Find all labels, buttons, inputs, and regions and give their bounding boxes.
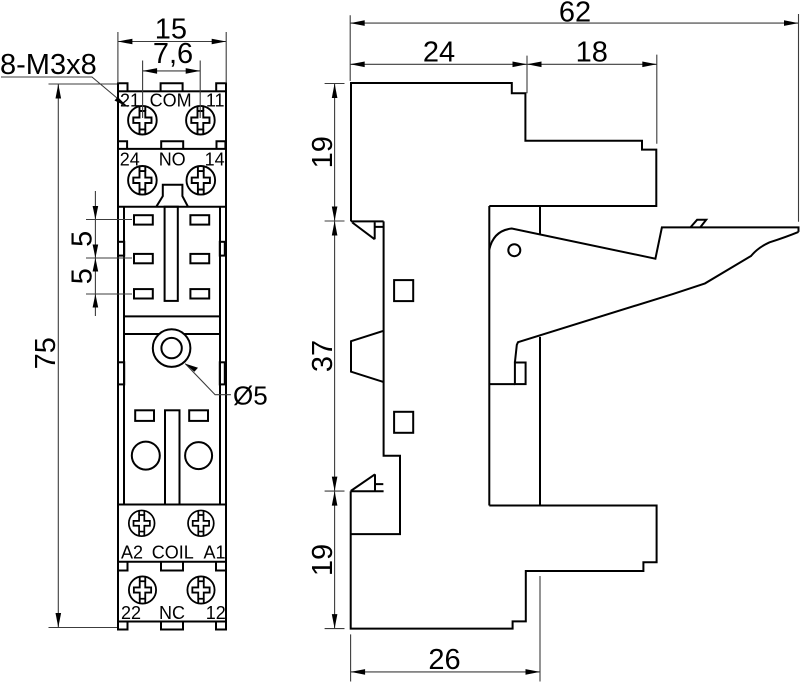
svg-text:NO: NO (159, 149, 186, 169)
svg-text:62: 62 (559, 0, 591, 29)
svg-text:A2: A2 (121, 543, 143, 563)
svg-text:24: 24 (120, 149, 140, 169)
svg-text:21: 21 (120, 90, 140, 110)
svg-text:22: 22 (121, 603, 141, 623)
svg-text:26: 26 (428, 644, 460, 676)
svg-text:Ø5: Ø5 (233, 381, 268, 411)
svg-text:12: 12 (206, 603, 226, 623)
svg-text:75: 75 (30, 337, 62, 369)
svg-text:NC: NC (159, 603, 185, 623)
svg-text:A1: A1 (203, 543, 225, 563)
svg-text:COIL: COIL (152, 543, 194, 563)
svg-text:18: 18 (576, 37, 608, 69)
svg-text:5: 5 (67, 268, 99, 284)
svg-text:37: 37 (307, 340, 339, 372)
svg-text:5: 5 (67, 231, 99, 247)
svg-text:7,6: 7,6 (153, 38, 193, 70)
svg-text:11: 11 (206, 90, 225, 110)
svg-text:COM: COM (150, 90, 192, 110)
svg-text:8-M3x8: 8-M3x8 (0, 49, 97, 81)
svg-text:19: 19 (307, 544, 339, 576)
svg-text:19: 19 (307, 136, 339, 168)
svg-text:24: 24 (423, 37, 455, 69)
svg-text:14: 14 (205, 149, 225, 169)
